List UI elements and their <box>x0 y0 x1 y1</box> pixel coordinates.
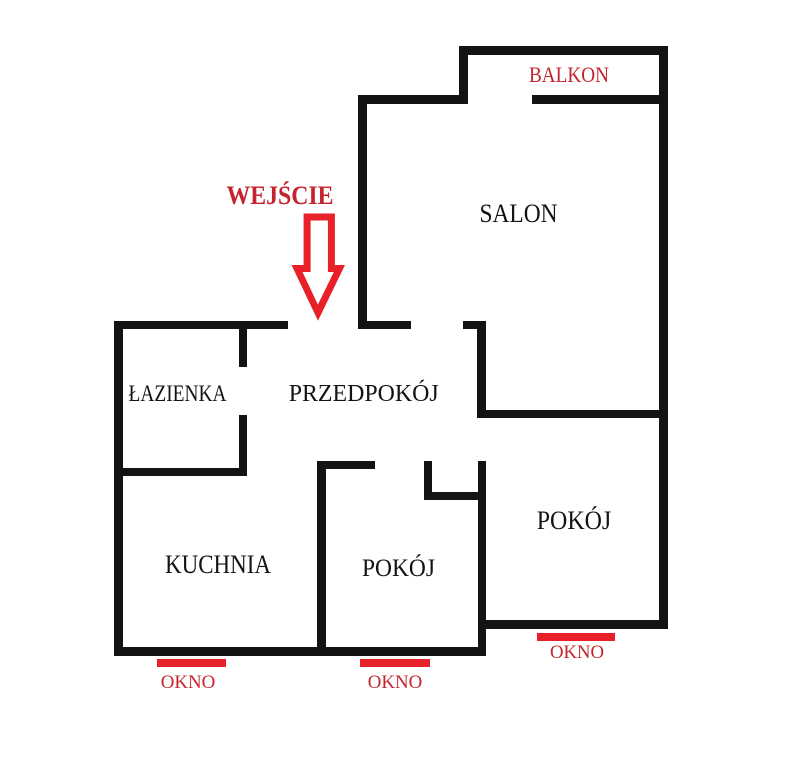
svg-text:SALON: SALON <box>480 199 558 228</box>
svg-text:BALKON: BALKON <box>529 62 609 87</box>
svg-text:POKÓJ: POKÓJ <box>362 554 435 582</box>
svg-text:POKÓJ: POKÓJ <box>537 506 612 535</box>
svg-text:OKNO: OKNO <box>550 642 604 663</box>
svg-text:OKNO: OKNO <box>161 672 216 693</box>
svg-text:WEJŚCIE: WEJŚCIE <box>227 181 334 210</box>
svg-text:PRZEDPOKÓJ: PRZEDPOKÓJ <box>289 380 439 407</box>
svg-text:ŁAZIENKA: ŁAZIENKA <box>129 381 227 406</box>
svg-text:OKNO: OKNO <box>368 672 423 693</box>
svg-text:KUCHNIA: KUCHNIA <box>165 550 271 579</box>
